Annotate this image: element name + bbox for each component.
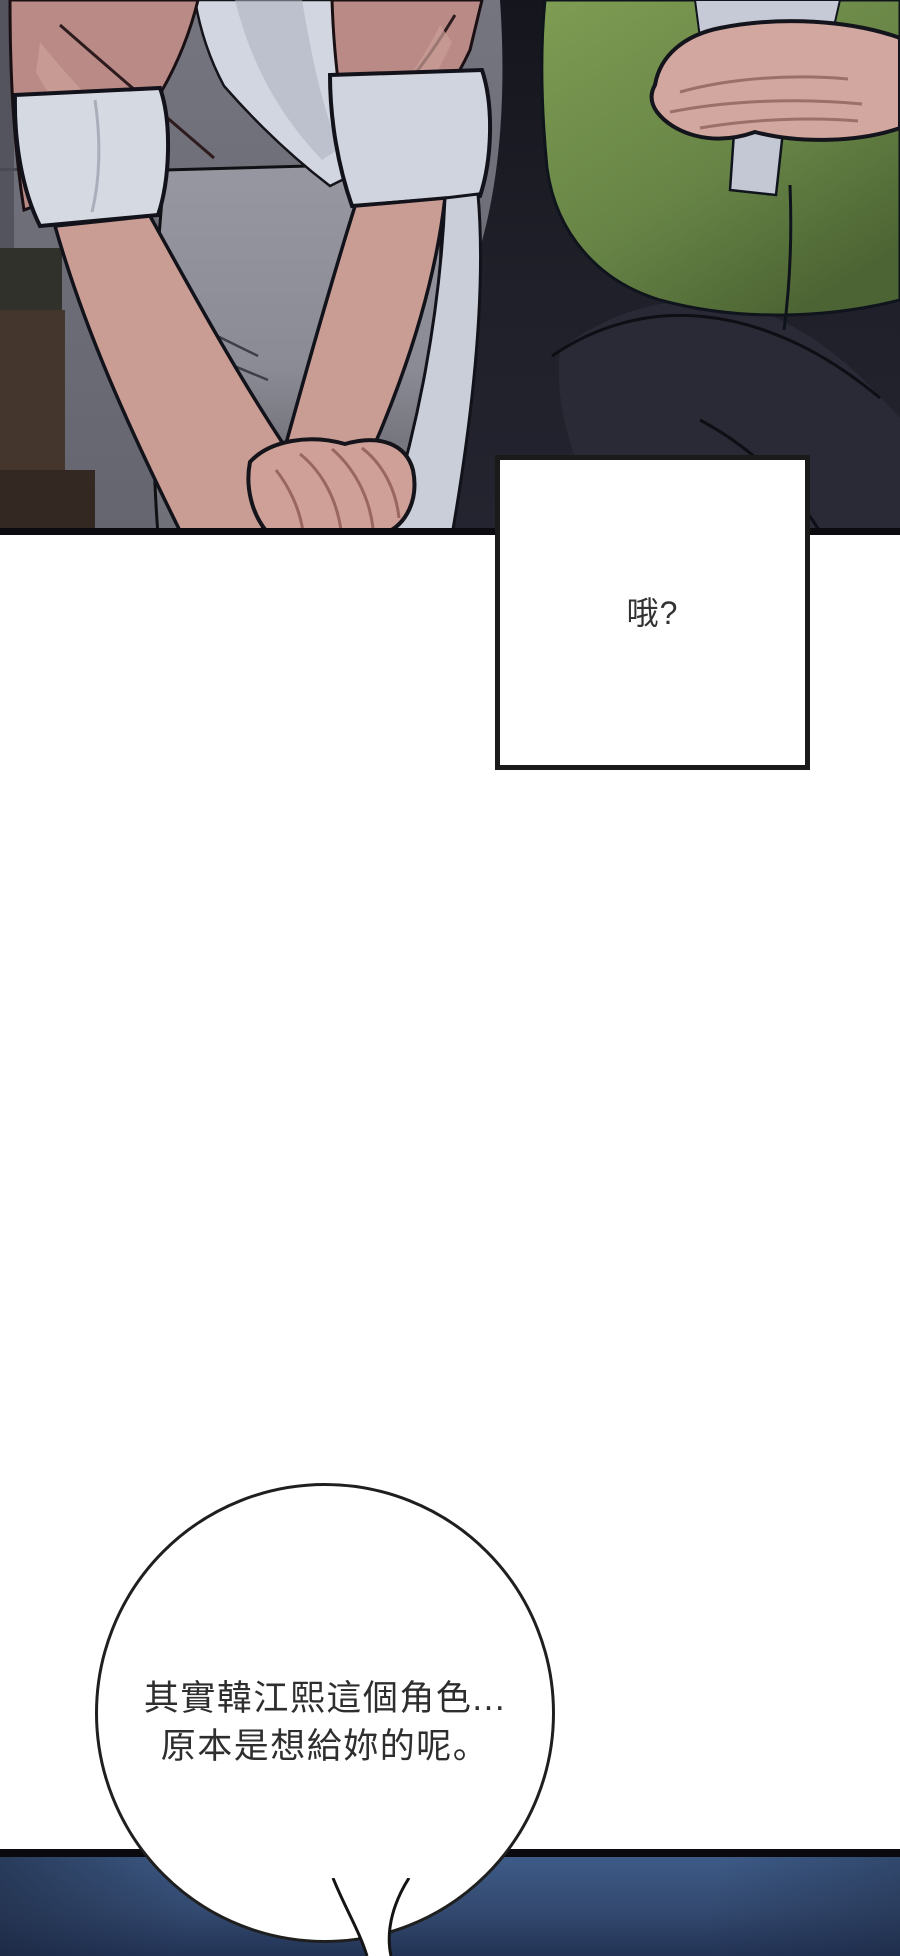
bubble-tail-icon: [325, 1878, 415, 1956]
speech-box: 哦?: [495, 455, 810, 770]
speech-box-text: 哦?: [627, 597, 679, 629]
dialogue-line-1: 其實韓江熙這個角色...: [144, 1675, 506, 1723]
comic-page: 哦? 其實韓江熙這個角色... 原本是想給妳的呢。: [0, 0, 900, 1956]
dialogue-line-2: 原本是想給妳的呢。: [161, 1723, 490, 1771]
dialogue-bubble: 其實韓江熙這個角色... 原本是想給妳的呢。: [95, 1483, 555, 1943]
